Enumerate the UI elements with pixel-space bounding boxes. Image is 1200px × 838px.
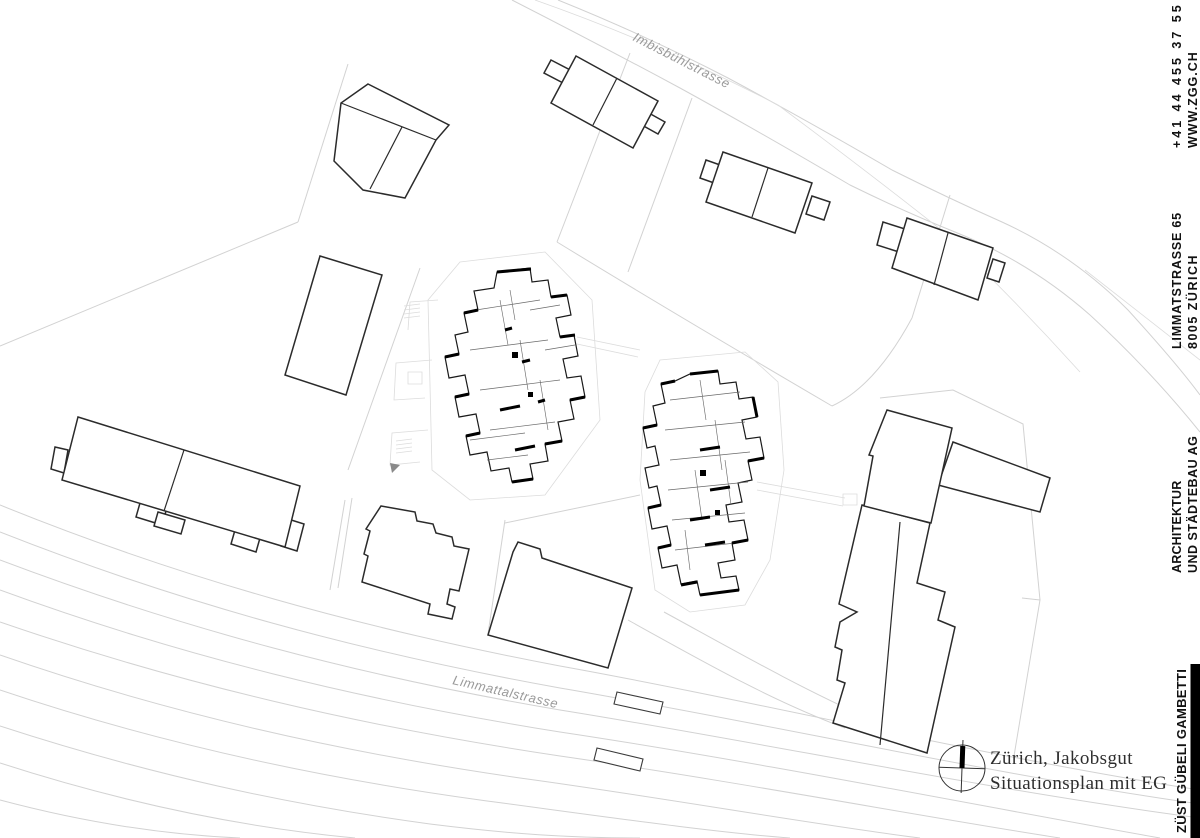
core-a2 (528, 392, 533, 397)
firm-phone: +41 44 455 37 55 (1170, 2, 1184, 148)
core-b2 (715, 510, 720, 515)
firm-info-margin: +41 44 455 37 55 WWW.ZGG.CH LIMMATSTRASS… (1170, 2, 1200, 838)
title-block: Zürich, Jakobsgut Situationsplan mit EG (938, 739, 1167, 794)
site-plan-drawing: Imbisbühlstrasse Limmattalstrasse +41 44… (0, 0, 1200, 838)
building-northwest (334, 84, 449, 198)
firm-city: 8005 ZÜRICH (1185, 254, 1200, 349)
firm-street: LIMMATSTRASSE 65 (1170, 212, 1184, 349)
building-east-complex (833, 410, 1050, 753)
project-title: Zürich, Jakobsgut (990, 748, 1133, 769)
north-compass-icon (938, 739, 986, 794)
site-plan-page: Imbisbühlstrasse Limmattalstrasse +41 44… (0, 0, 1200, 838)
core-a1 (512, 352, 518, 358)
building-west-slab (51, 417, 304, 552)
building-west-small (285, 256, 382, 395)
building-northeast (877, 218, 1005, 300)
firm-website: WWW.ZGG.CH (1186, 51, 1200, 148)
building-north-2 (700, 152, 830, 233)
building-south-2 (488, 542, 632, 668)
street-label-imbisbuehlstrasse: Imbisbühlstrasse (631, 29, 733, 91)
new-building-a (445, 268, 585, 482)
core-b1 (700, 470, 706, 476)
sheet-title: Situationsplan mit EG (990, 773, 1167, 794)
building-south-1 (362, 506, 469, 619)
platforms (594, 692, 663, 771)
street-lines (512, 0, 1200, 432)
firm-type-line2: UND STÄDTEBAU AG (1185, 436, 1200, 573)
brand-bar (1191, 664, 1200, 838)
firm-type-line1: ARCHITEKTUR (1170, 481, 1184, 573)
firm-brand-name: ZÜST GÜBELI GAMBETTI (1174, 669, 1189, 833)
new-building-b (643, 371, 764, 595)
compass-needle (962, 746, 963, 768)
